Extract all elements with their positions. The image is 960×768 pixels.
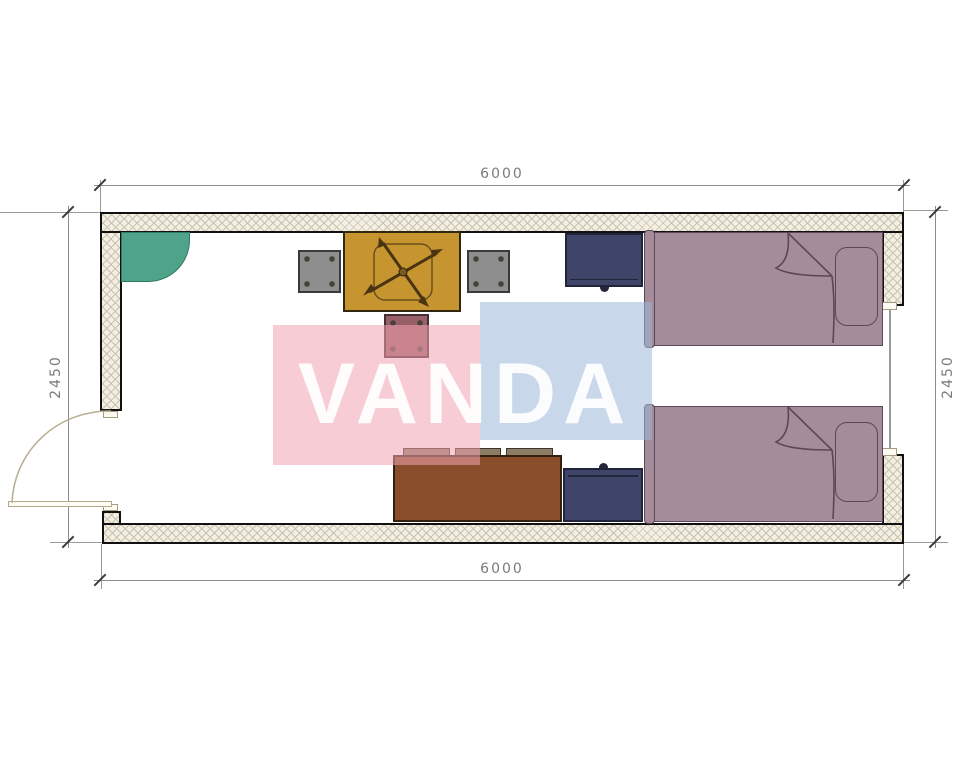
extension-line	[904, 542, 948, 543]
dimension-right-label: 2450	[940, 355, 956, 399]
stool-left	[298, 250, 341, 293]
nightstand-bottom	[563, 468, 643, 522]
wall-left-upper	[100, 212, 122, 411]
nightstand-knob	[599, 463, 608, 468]
extension-line	[0, 212, 100, 213]
nightstand-edge-line	[570, 279, 638, 281]
dimension-line-top	[94, 185, 910, 186]
table-fan-icon	[345, 233, 459, 310]
dimension-line-right	[935, 206, 936, 548]
pillow	[835, 422, 878, 502]
nightstand-edge-line	[568, 475, 638, 477]
nightstand-knob	[600, 287, 609, 292]
nightstand-top	[565, 233, 643, 287]
floor-plan-canvas: { "watermark": { "text": "VANDA" }, "dim…	[0, 0, 960, 768]
door-swing-arc	[8, 406, 114, 506]
dimension-bottom-label: 6000	[452, 561, 552, 577]
window-jamb	[882, 302, 897, 310]
wall-bottom	[102, 523, 904, 544]
extension-line	[50, 542, 103, 543]
dresser	[393, 455, 562, 522]
window-jamb	[882, 448, 897, 456]
extension-line	[904, 210, 948, 211]
corner-shelf	[121, 232, 190, 282]
extension-line	[101, 544, 102, 589]
wall-top	[100, 212, 904, 233]
window-sill-line	[889, 306, 891, 454]
table	[343, 231, 461, 312]
dimension-line-bottom	[94, 580, 910, 581]
dimension-top-label: 6000	[452, 166, 552, 182]
watermark-text: VANDA	[275, 345, 655, 444]
dimension-left-label: 2450	[48, 355, 64, 399]
pillow	[835, 247, 878, 326]
stool-right	[467, 250, 510, 293]
